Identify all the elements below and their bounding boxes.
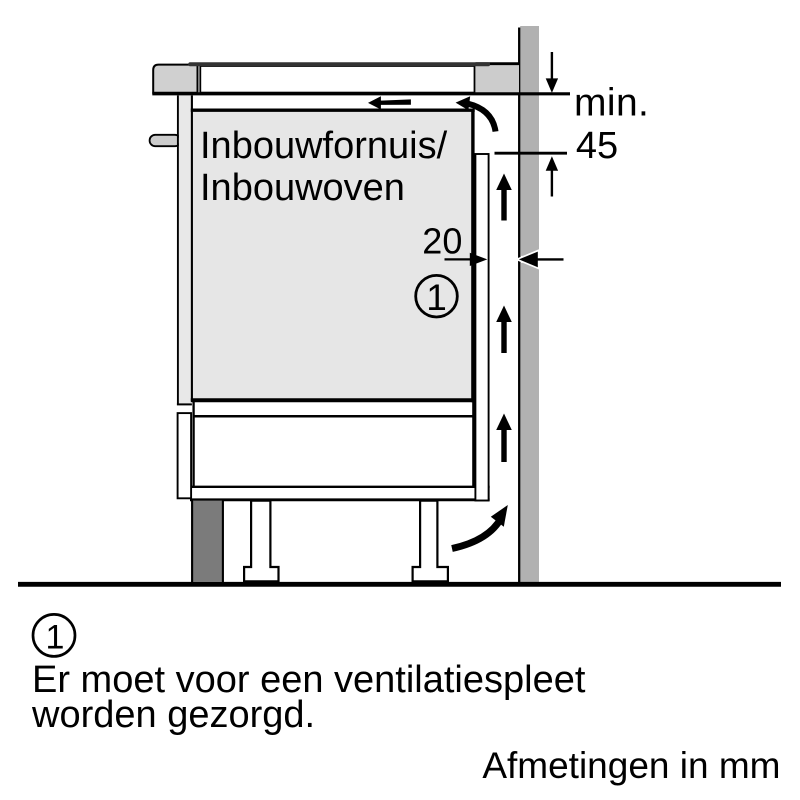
svg-text:Inbouwfornuis/: Inbouwfornuis/ — [200, 125, 448, 167]
svg-text:Inbouwoven: Inbouwoven — [200, 167, 405, 209]
svg-text:20: 20 — [422, 220, 462, 261]
svg-text:Afmetingen in mm: Afmetingen in mm — [482, 745, 780, 786]
svg-text:1: 1 — [46, 618, 65, 656]
svg-text:1: 1 — [426, 277, 447, 318]
svg-text:worden gezorgd.: worden gezorgd. — [31, 694, 315, 736]
svg-text:45: 45 — [576, 125, 618, 167]
svg-text:min.: min. — [574, 81, 649, 124]
